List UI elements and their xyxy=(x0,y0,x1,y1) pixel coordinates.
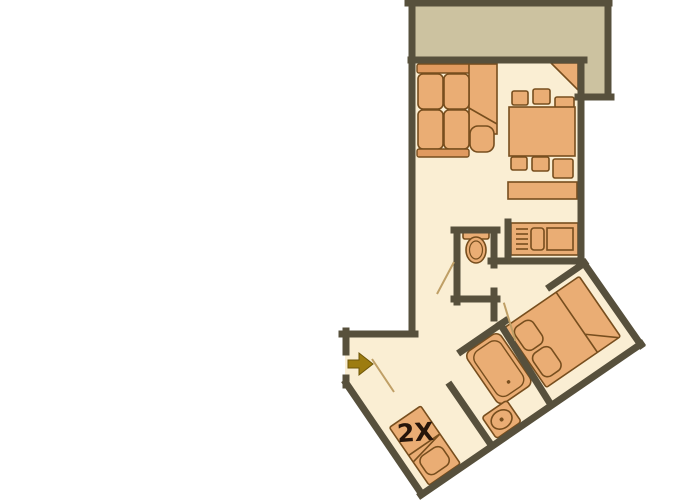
sideboard xyxy=(508,182,577,199)
toilet-bowl-inner xyxy=(470,241,483,259)
chair xyxy=(512,91,528,105)
chair xyxy=(553,159,573,178)
chair xyxy=(532,157,549,171)
kitchen-sink xyxy=(531,228,544,250)
sofa-cushion xyxy=(418,74,443,109)
dining-table xyxy=(509,107,575,156)
ottoman xyxy=(470,126,494,152)
sofa-cushion xyxy=(418,110,443,149)
sofa-cushion xyxy=(444,74,469,109)
sofa-front-strip xyxy=(417,149,469,157)
floor-plan-svg: 2X xyxy=(0,0,700,500)
bunk-bed-label: 2X xyxy=(396,417,435,448)
sofa-cushion xyxy=(444,110,469,149)
corner-sofa xyxy=(417,64,497,157)
chair xyxy=(533,89,550,104)
sofa-chaise xyxy=(469,64,497,134)
kitchen-unit xyxy=(511,223,578,255)
kitchen-worktop xyxy=(547,228,573,250)
floor-plan-page: 2X xyxy=(0,0,700,500)
chair xyxy=(511,157,527,170)
